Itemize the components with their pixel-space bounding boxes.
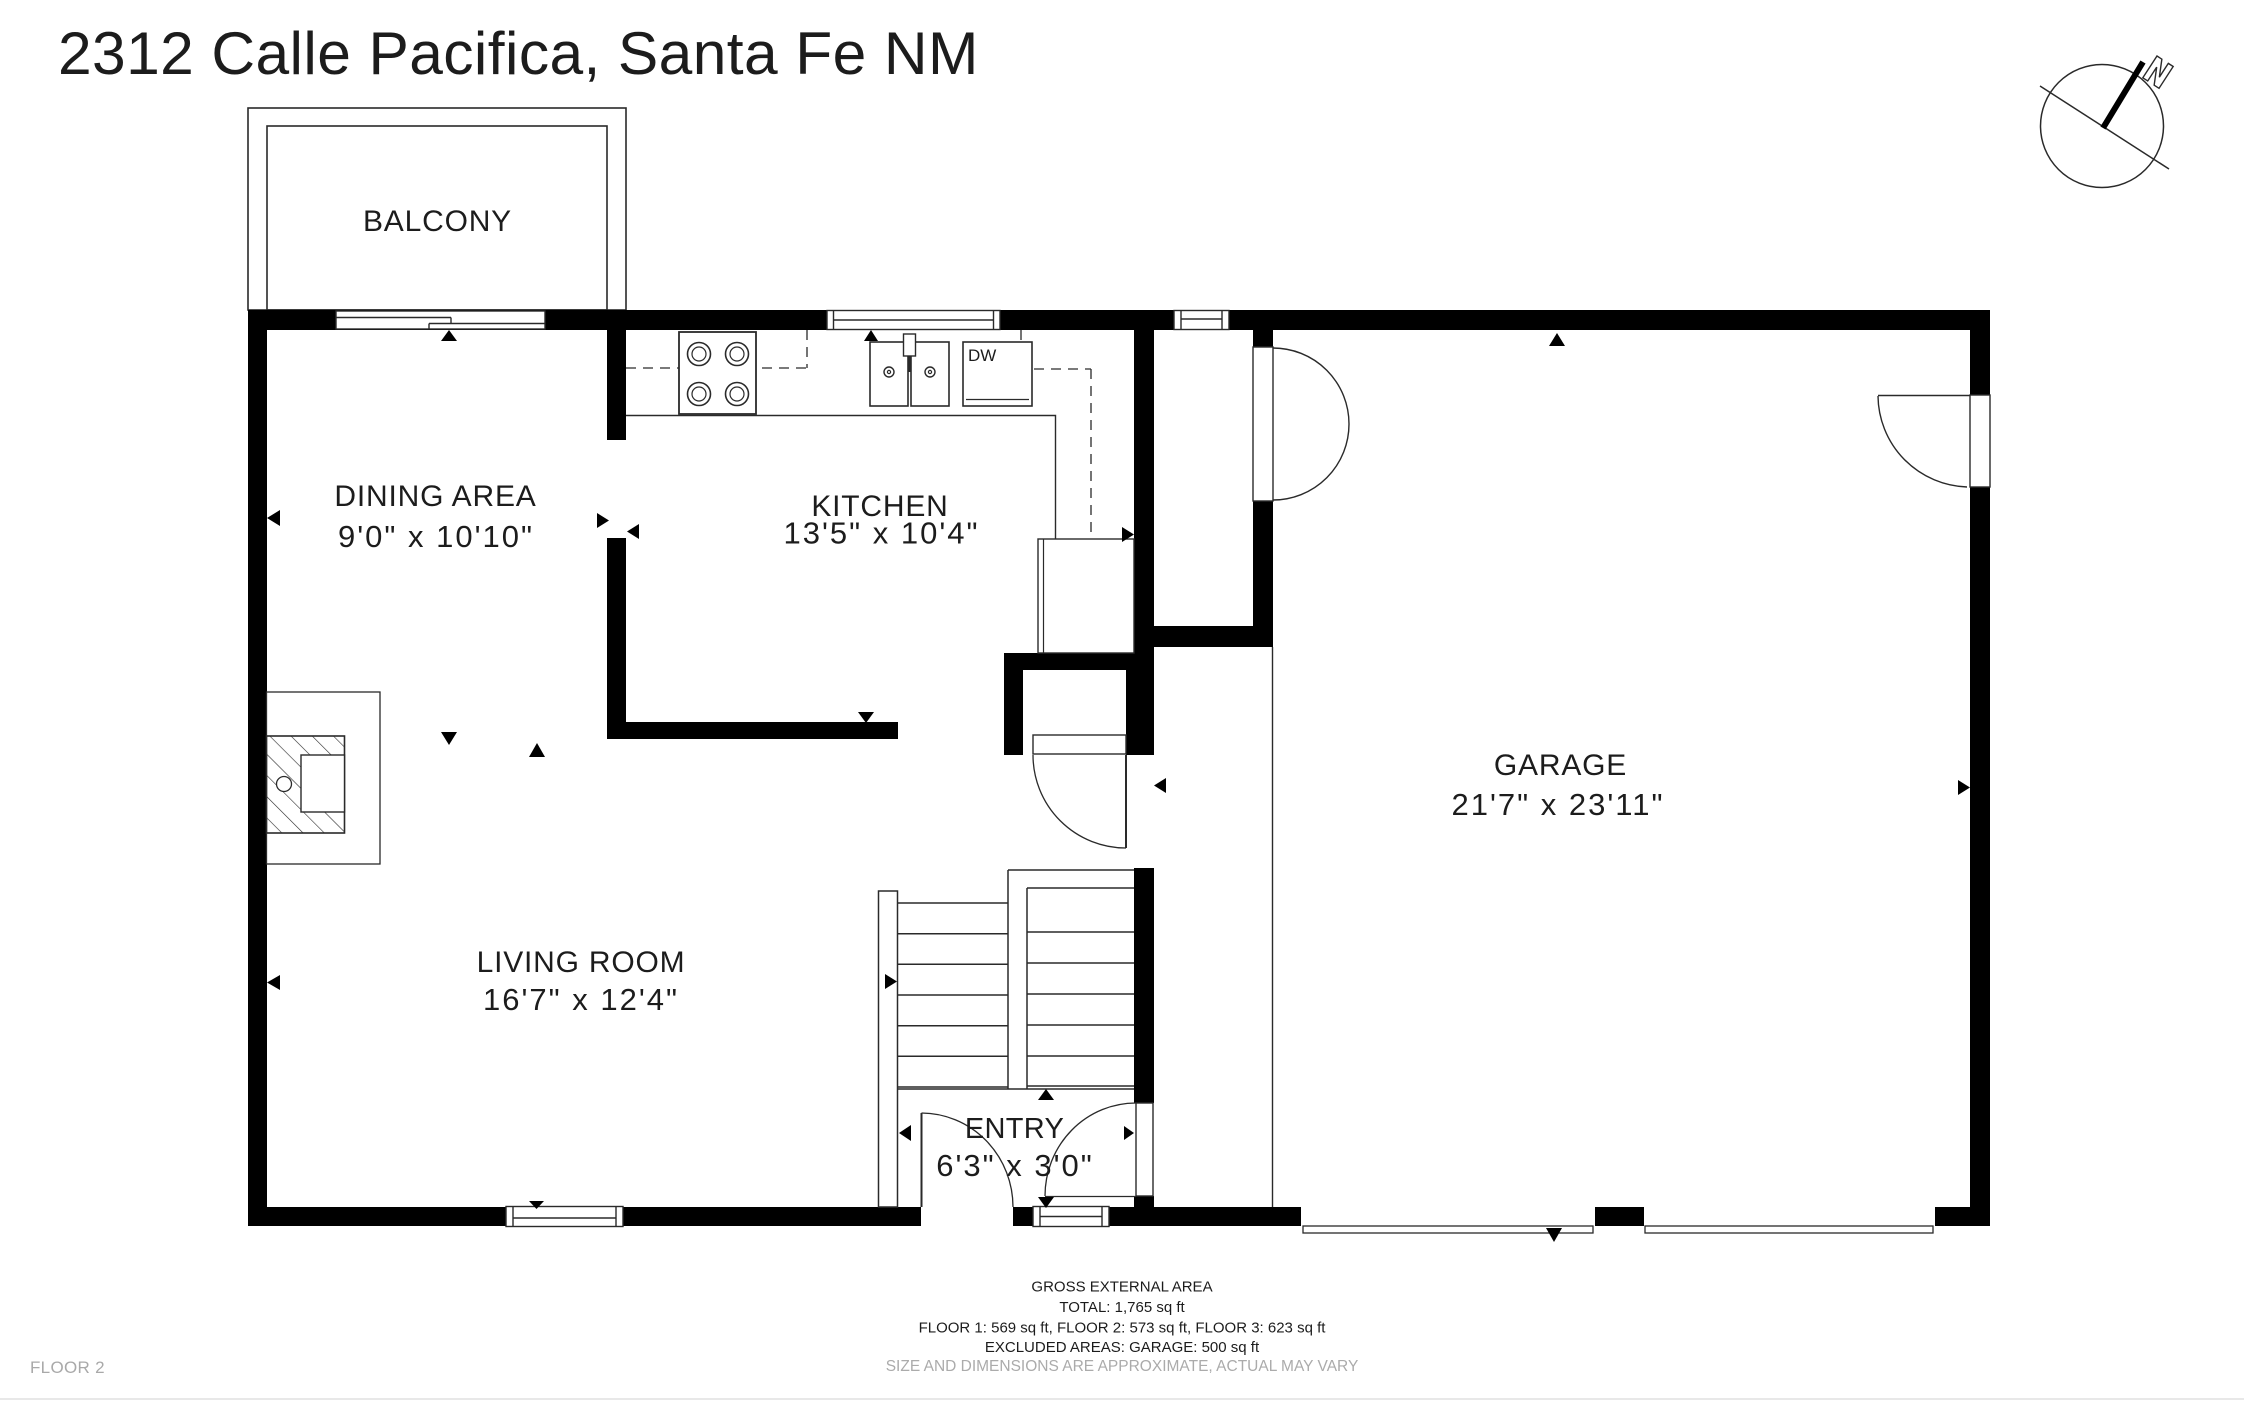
svg-text:DINING AREA: DINING AREA	[334, 480, 536, 513]
svg-text:LIVING ROOM: LIVING ROOM	[477, 946, 686, 979]
svg-text:GARAGE: GARAGE	[1494, 749, 1627, 782]
svg-text:TOTAL: 1,765 sq ft: TOTAL: 1,765 sq ft	[1059, 1299, 1185, 1316]
svg-text:SIZE AND DIMENSIONS ARE APPROX: SIZE AND DIMENSIONS ARE APPROXIMATE, ACT…	[886, 1358, 1359, 1375]
svg-text:EXCLUDED AREAS: GARAGE: 500 sq: EXCLUDED AREAS: GARAGE: 500 sq ft	[985, 1339, 1260, 1356]
svg-text:BALCONY: BALCONY	[363, 205, 512, 238]
svg-text:2312 Calle Pacifica, Santa Fe: 2312 Calle Pacifica, Santa Fe NM	[58, 19, 979, 87]
svg-text:6'3" x 3'0": 6'3" x 3'0"	[936, 1148, 1094, 1183]
svg-text:DW: DW	[968, 346, 996, 365]
svg-text:9'0" x 10'10": 9'0" x 10'10"	[338, 519, 534, 554]
svg-text:GROSS EXTERNAL AREA: GROSS EXTERNAL AREA	[1031, 1279, 1212, 1296]
svg-text:ENTRY: ENTRY	[965, 1113, 1064, 1145]
svg-text:FLOOR 1: 569 sq ft, FLOOR 2: 5: FLOOR 1: 569 sq ft, FLOOR 2: 573 sq ft, …	[919, 1320, 1327, 1337]
svg-text:21'7" x 23'11": 21'7" x 23'11"	[1452, 787, 1665, 822]
svg-text:13'5" x 10'4": 13'5" x 10'4"	[783, 516, 979, 551]
svg-text:FLOOR 2: FLOOR 2	[30, 1358, 105, 1377]
svg-text:16'7" x 12'4": 16'7" x 12'4"	[483, 982, 679, 1017]
